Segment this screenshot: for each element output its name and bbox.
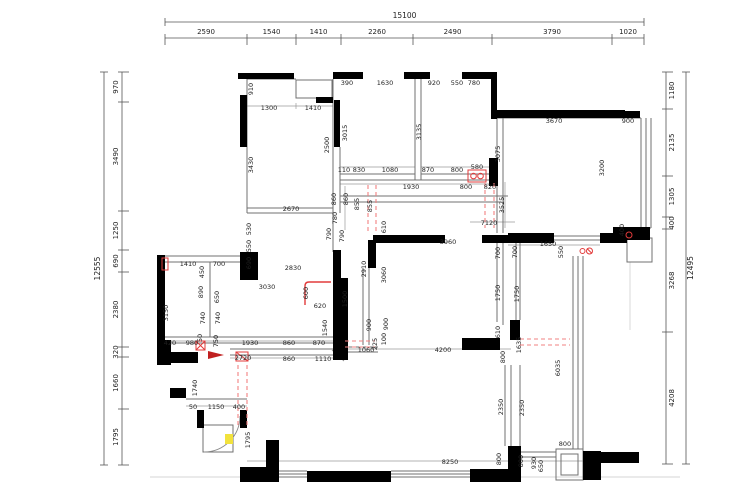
dim-label: 790 (338, 230, 346, 242)
dim-label: 920 (428, 79, 440, 87)
dim-label: 860 (342, 193, 350, 205)
dim-label: 1410 (305, 104, 322, 112)
switch-icon (208, 351, 224, 359)
dim-label: 3525 (498, 197, 506, 214)
dim-label: 3135 (415, 124, 423, 141)
dim-label: 110 (338, 166, 350, 174)
dim-label: 780 (468, 79, 480, 87)
dim-label: 2260 (368, 28, 386, 36)
dim-label: 820 (484, 183, 496, 191)
dim-label: 740 (214, 312, 222, 324)
dim-label: 1020 (619, 28, 637, 36)
dim-label: 860 (283, 355, 295, 363)
highlight-marker (225, 434, 233, 444)
dim-label: 580 (471, 163, 483, 171)
dim-label: 420 (164, 339, 176, 347)
dim-label: 1300 (261, 104, 278, 112)
dim-label: 1930 (403, 183, 420, 191)
dim-label: 650 (537, 460, 545, 472)
floor-plan-svg: 9101300141025003430267053055069086086078… (0, 0, 746, 483)
dim-label: 1630 (377, 79, 394, 87)
dim-label: 610 (380, 221, 388, 233)
dim-label: 900 (365, 319, 373, 331)
dim-label: 12555 (93, 256, 102, 280)
dim-label: 610 (494, 326, 502, 338)
dim-label: 800 (495, 453, 503, 465)
dim-label: 900 (622, 117, 634, 125)
dim-label: 800 (559, 440, 571, 448)
dim-label: 600 (302, 287, 310, 299)
dim-label: 700 (511, 246, 519, 258)
dim-label: 690 (245, 257, 253, 269)
thin-walls-layer (157, 79, 652, 480)
dim-label: 1650 (540, 240, 557, 248)
dim-label: 890 (197, 286, 205, 298)
dim-label: 650 (213, 291, 221, 303)
dim-label: 1930 (242, 339, 259, 347)
dim-label: 1250 (112, 222, 120, 240)
dim-label: 1540 (321, 320, 329, 337)
dim-label: 3060 (380, 267, 388, 284)
entry-door-arc (204, 416, 240, 452)
walls-layer (157, 72, 650, 482)
dim-label: 1305 (668, 188, 676, 206)
dim-label: 2720 (235, 354, 252, 362)
dim-label: 2350 (497, 399, 505, 416)
valve-cross (587, 249, 592, 254)
dim-label: 3790 (543, 28, 561, 36)
bay-window-outline (296, 80, 332, 98)
dim-label: 870 (422, 166, 434, 174)
dim-label: 1750 (494, 285, 502, 302)
dim-label: 15100 (393, 11, 417, 20)
dim-label: 830 (353, 166, 365, 174)
dim-label: 800 (460, 183, 472, 191)
dimension-labels-layer: 9101300141025003430267053055069086086078… (162, 79, 634, 472)
dim-label: 7120 (481, 219, 498, 227)
dim-label: 50 (196, 334, 204, 342)
dim-label: 750 (212, 335, 220, 347)
dim-label: 1750 (513, 286, 521, 303)
dim-label: 870 (313, 339, 325, 347)
extension-lines-layer (150, 262, 680, 477)
dim-label: 2910 (360, 261, 368, 278)
dim-label: 3150 (162, 305, 170, 322)
dim-label: 1110 (315, 355, 332, 363)
floor-plan-page: 9101300141025003430267053055069086086078… (0, 0, 746, 483)
dim-label: 800 (499, 351, 507, 363)
dim-label: 1150 (208, 403, 225, 411)
dim-label: 3960 (440, 238, 457, 246)
dim-label: 12495 (686, 256, 695, 280)
dim-label: 860 (330, 193, 338, 205)
dim-label: 4208 (668, 389, 676, 407)
dim-label: 550 (245, 240, 253, 252)
dim-label: 2350 (518, 400, 526, 417)
dim-label: 700 (494, 247, 502, 259)
dim-label: 1540 (263, 28, 281, 36)
dim-label: 2830 (285, 264, 302, 272)
duct-inner-outline (561, 454, 578, 475)
dim-label: 3075 (494, 146, 502, 163)
dim-label: 3030 (259, 283, 276, 291)
dim-label: 390 (341, 79, 353, 87)
dim-label: 3200 (598, 160, 606, 177)
dim-label: 800 (517, 455, 525, 467)
dim-label: 1635 (515, 337, 523, 354)
dim-label: 2670 (283, 205, 300, 213)
dim-label: 3268 (668, 272, 676, 290)
dim-label: 3670 (546, 117, 563, 125)
dim-label: 690 (112, 254, 120, 267)
dim-label: 4200 (435, 346, 452, 354)
dim-label: 855 (366, 200, 374, 212)
dim-label: 910 (247, 83, 255, 95)
dim-label: 1795 (112, 428, 120, 446)
dim-label: 3490 (112, 148, 120, 166)
balcony-outline (627, 238, 652, 262)
fixtures-layer (162, 170, 632, 361)
dim-label: 450 (198, 266, 206, 278)
dim-label: 8250 (442, 458, 459, 466)
dim-label: 1410 (180, 260, 197, 268)
dim-label: 2590 (197, 28, 215, 36)
dim-label: 100 (380, 333, 388, 345)
dim-label: 2135 (668, 134, 676, 152)
dim-label: 550 (451, 79, 463, 87)
dim-label: 2490 (444, 28, 462, 36)
dim-label: 780 (331, 212, 339, 224)
dim-label: 860 (283, 339, 295, 347)
dim-label: 1180 (668, 82, 676, 100)
dim-label: 1660 (112, 374, 120, 392)
dim-label: 1740 (191, 380, 199, 397)
dim-label: 800 (451, 166, 463, 174)
dim-label: 530 (245, 223, 253, 235)
valve-icon (580, 249, 585, 254)
dim-label: 970 (112, 80, 120, 93)
dim-label: 900 (382, 318, 390, 330)
dim-label: 550 (557, 246, 565, 258)
dim-label: 1410 (310, 28, 328, 36)
dim-label: 1795 (244, 432, 252, 449)
dim-label: 6035 (554, 360, 562, 377)
dim-label: 790 (325, 228, 333, 240)
dim-label: 400 (233, 403, 245, 411)
dim-label: 1080 (382, 166, 399, 174)
dim-label: 740 (199, 312, 207, 324)
dim-label: 50 (189, 403, 197, 411)
dim-label: 2500 (323, 137, 331, 154)
dim-label: 320 (112, 345, 120, 358)
dim-label: 620 (314, 302, 326, 310)
dim-label: 855 (353, 198, 361, 210)
dimension-lines-layer (157, 103, 630, 461)
dim-label: 700 (213, 260, 225, 268)
dim-label: 1060 (358, 346, 375, 354)
dim-label: 400 (668, 216, 676, 229)
dim-label: 3015 (341, 125, 349, 142)
dim-label: 2380 (112, 301, 120, 319)
dim-label: 400 (618, 224, 626, 236)
dim-label: 3430 (247, 157, 255, 174)
dim-label: 1500 (341, 291, 349, 308)
